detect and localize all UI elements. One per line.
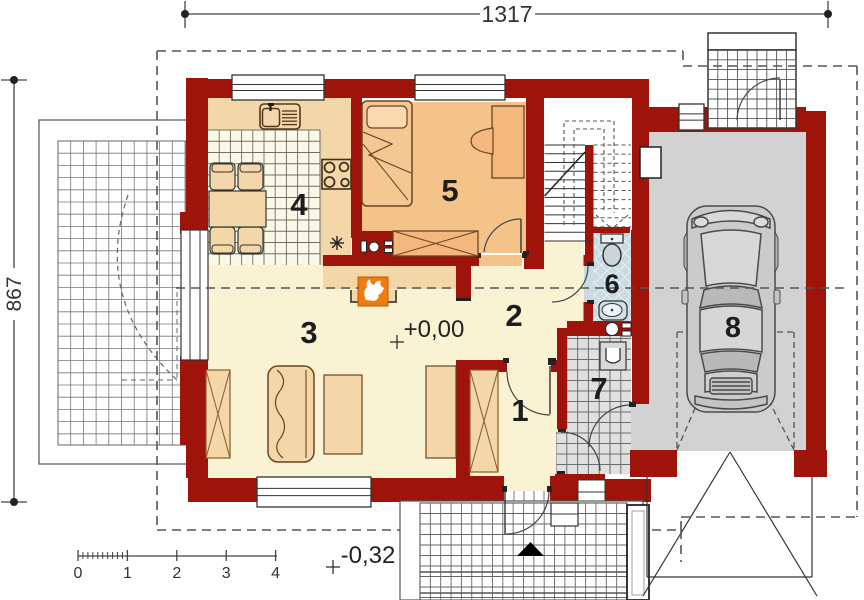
svg-text:1: 1 [511, 393, 528, 428]
svg-text:-0,32: -0,32 [341, 542, 396, 569]
svg-text:867: 867 [3, 276, 26, 311]
svg-text:5: 5 [441, 173, 458, 208]
svg-text:8: 8 [725, 312, 741, 344]
svg-text:0: 0 [74, 565, 83, 582]
svg-text:7: 7 [590, 371, 607, 406]
svg-text:3: 3 [300, 315, 317, 350]
svg-text:1317: 1317 [481, 1, 532, 27]
svg-text:3: 3 [222, 565, 231, 582]
svg-text:6: 6 [604, 269, 619, 299]
svg-text:4: 4 [271, 565, 280, 582]
svg-text:2: 2 [505, 298, 522, 333]
svg-text:1: 1 [123, 565, 132, 582]
svg-text:2: 2 [172, 565, 181, 582]
svg-text:+0,00: +0,00 [404, 316, 465, 343]
svg-text:4: 4 [290, 187, 308, 222]
